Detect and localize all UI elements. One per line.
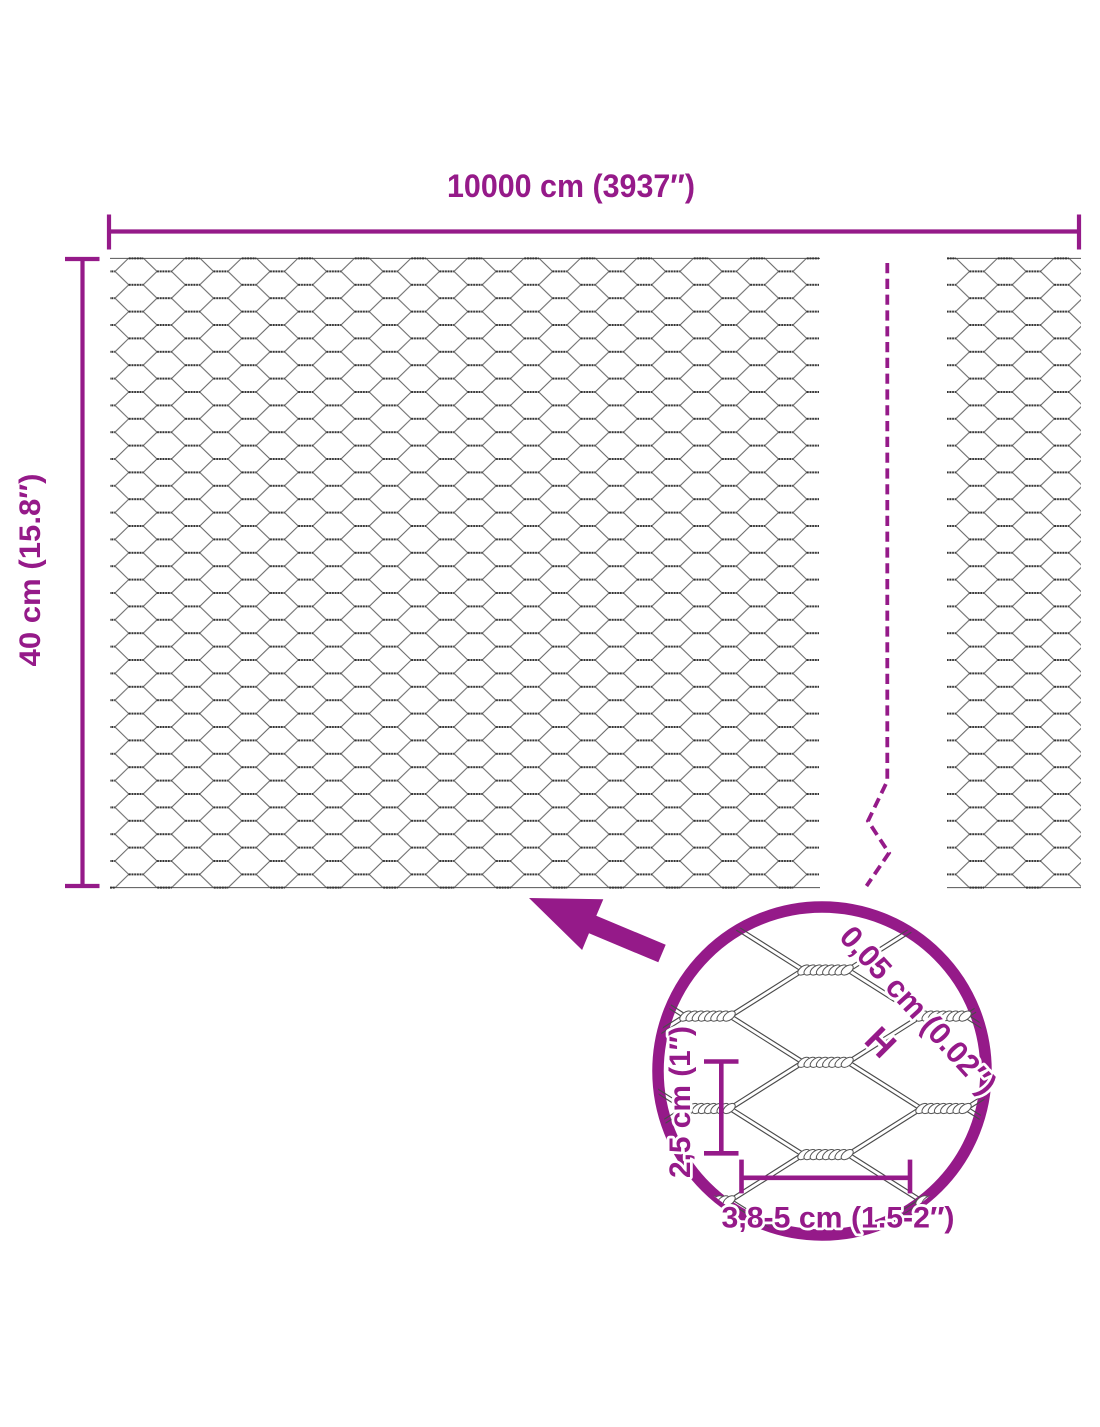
svg-text:3,8-5 cm (1.5-2″): 3,8-5 cm (1.5-2″) bbox=[722, 1202, 955, 1235]
svg-text:40 cm (15.8″): 40 cm (15.8″) bbox=[14, 474, 47, 667]
svg-text:2,5 cm (1″): 2,5 cm (1″) bbox=[664, 1026, 697, 1178]
svg-text:10000 cm (3937″): 10000 cm (3937″) bbox=[447, 168, 695, 204]
